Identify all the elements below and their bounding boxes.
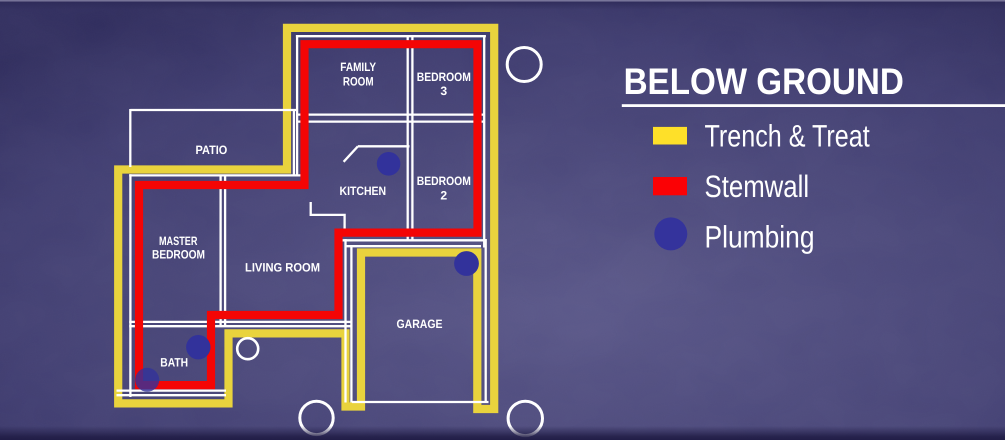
svg-text:Stemwall: Stemwall	[705, 169, 810, 204]
svg-text:Plumbing: Plumbing	[705, 219, 815, 254]
svg-text:GARAGE: GARAGE	[397, 317, 443, 331]
svg-text:BEDROOM: BEDROOM	[152, 248, 205, 262]
svg-text:LIVING ROOM: LIVING ROOM	[245, 261, 320, 275]
svg-text:BEDROOM: BEDROOM	[417, 174, 471, 188]
svg-text:BATH: BATH	[160, 355, 188, 369]
svg-text:PATIO: PATIO	[196, 143, 228, 157]
svg-text:3: 3	[440, 84, 447, 98]
svg-text:MASTER: MASTER	[159, 234, 198, 248]
svg-text:ROOM: ROOM	[343, 74, 374, 88]
svg-text:Trench & Treat: Trench & Treat	[705, 119, 871, 154]
svg-text:KITCHEN: KITCHEN	[340, 184, 387, 198]
svg-text:FAMILY: FAMILY	[340, 60, 376, 74]
svg-text:BEDROOM: BEDROOM	[417, 70, 471, 84]
svg-text:2: 2	[440, 188, 447, 202]
svg-text:BELOW GROUND: BELOW GROUND	[624, 61, 904, 102]
